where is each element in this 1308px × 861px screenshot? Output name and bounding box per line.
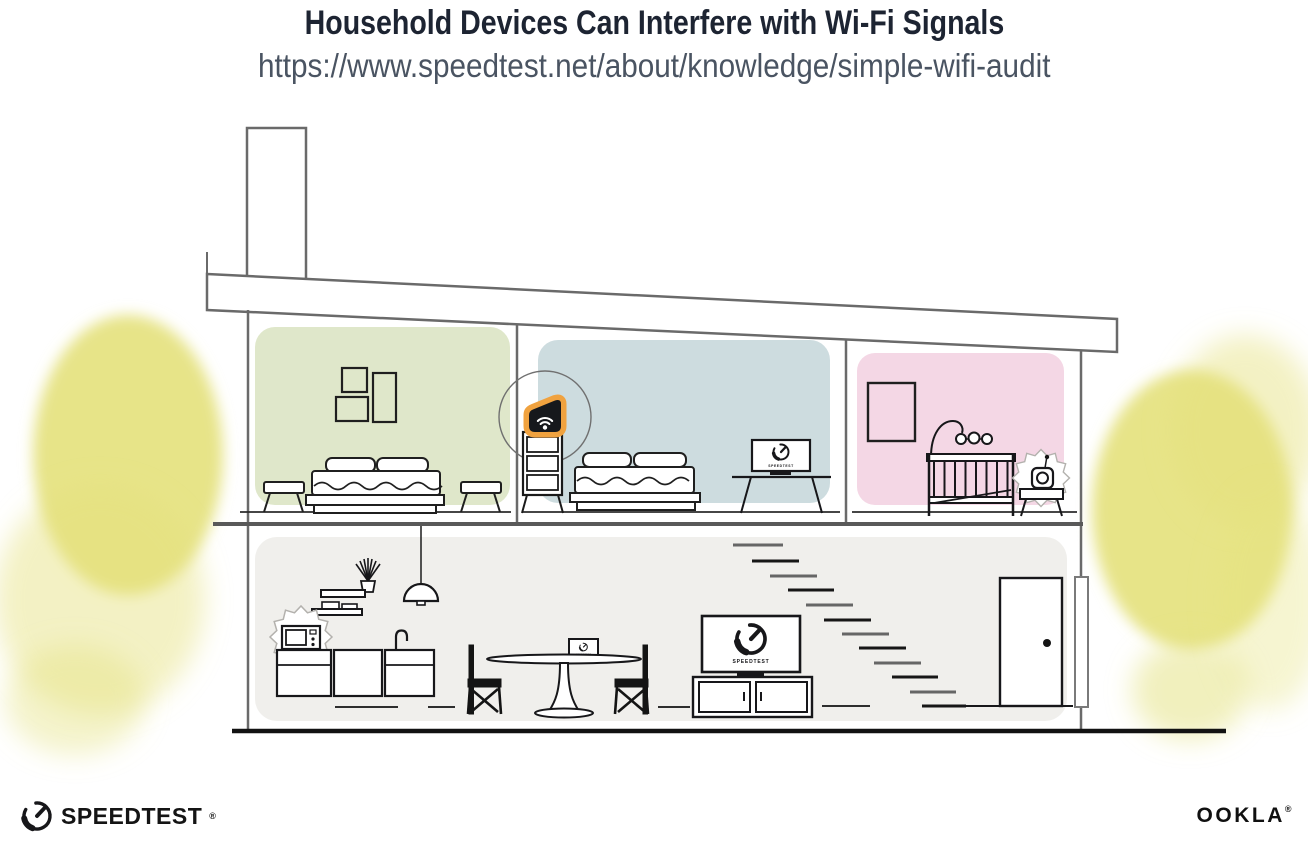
- console-door: [699, 682, 750, 712]
- mobile-ball: [956, 434, 966, 444]
- pillow: [326, 458, 375, 472]
- monitor-stand: [770, 471, 791, 475]
- ookla-reg-mark: ®: [1285, 804, 1294, 814]
- cabinet: [385, 650, 434, 696]
- ookla-wordmark: OOKLA: [1197, 804, 1285, 827]
- mobile-ball: [969, 433, 980, 444]
- tree-right: [1092, 335, 1308, 740]
- cup: [322, 602, 339, 609]
- bed-frame: [570, 493, 700, 502]
- chair-seat: [468, 679, 501, 687]
- monitor-screen-label: SPEEDTEST: [768, 464, 794, 468]
- cabinet: [277, 650, 331, 696]
- mobile-ball: [982, 434, 992, 444]
- microwave-door: [286, 630, 306, 645]
- dresser-drawer: [527, 437, 558, 452]
- side-table-leg: [1057, 499, 1062, 516]
- side-table: [1020, 489, 1063, 499]
- speedtest-logo: SPEEDTEST®: [20, 799, 216, 833]
- tv-screen-label: SPEEDTEST: [733, 659, 770, 665]
- bed-frame: [306, 495, 444, 505]
- dresser-drawer: [527, 456, 558, 471]
- page-title: Household Devices Can Interfere with Wi-…: [0, 4, 1308, 43]
- source-url: https://www.speedtest.net/about/knowledg…: [0, 47, 1308, 85]
- baby-monitor-lens: [1037, 473, 1048, 484]
- crib-rail: [927, 454, 1015, 461]
- baby-monitor-antenna-tip: [1045, 455, 1049, 459]
- microwave-knob: [311, 643, 314, 646]
- chair-seat: [615, 679, 648, 687]
- house-illustration: SPEEDTEST: [0, 0, 1308, 861]
- stool: [461, 482, 501, 493]
- chimney: [247, 128, 306, 280]
- dresser-leg: [522, 495, 527, 513]
- tree-left: [0, 315, 223, 755]
- tv-area: SPEEDTEST: [693, 616, 812, 717]
- bed: [570, 453, 700, 510]
- downspout: [1075, 577, 1088, 707]
- tree-blob: [5, 645, 145, 755]
- door: [1000, 578, 1062, 706]
- cabinet: [334, 650, 382, 696]
- pillow: [377, 458, 428, 472]
- pillow: [634, 453, 686, 467]
- bed: [306, 458, 444, 513]
- stool: [264, 482, 304, 493]
- wifi-dot: [543, 425, 547, 429]
- speedtest-gauge-icon: [20, 799, 54, 833]
- speedtest-wordmark: SPEEDTEST: [61, 803, 202, 830]
- shelf: [321, 590, 365, 597]
- console-door: [756, 682, 807, 712]
- dining-table-base: [535, 709, 593, 718]
- ookla-logo: OOKLA®: [1197, 804, 1294, 828]
- pillow: [583, 453, 631, 467]
- bed-base: [314, 505, 436, 513]
- page-title-text: Household Devices Can Interfere with Wi-…: [304, 4, 1004, 43]
- dresser-drawer: [527, 475, 558, 490]
- source-url-text: https://www.speedtest.net/about/knowledg…: [258, 47, 1050, 85]
- door-knob: [1043, 639, 1051, 647]
- lamp-bulb: [417, 601, 425, 605]
- microwave-knob: [311, 637, 314, 640]
- speedtest-reg-mark: ®: [209, 811, 216, 821]
- bed-base: [577, 502, 695, 510]
- shelf: [312, 609, 362, 615]
- page-header: Household Devices Can Interfere with Wi-…: [0, 4, 1308, 85]
